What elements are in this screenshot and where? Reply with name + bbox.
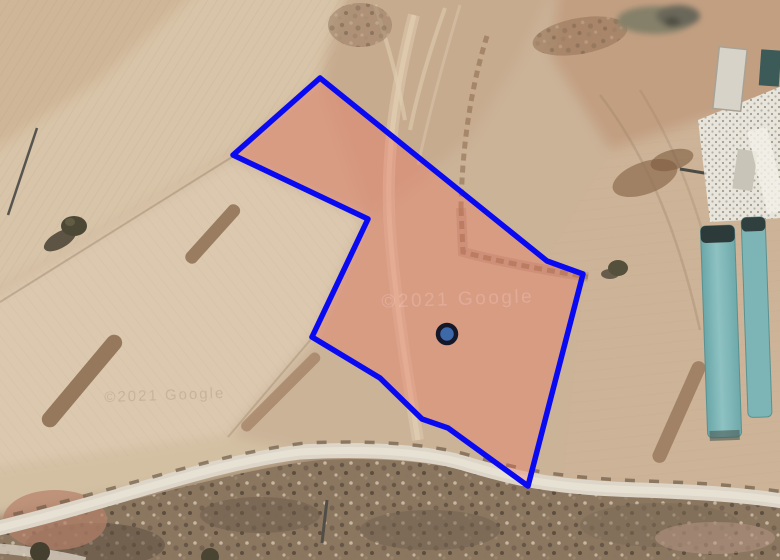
satellite-map[interactable]: ©2021 Google ©2021 Google — [0, 0, 780, 560]
bush-icon — [608, 260, 628, 276]
greenhouse-icon — [700, 225, 741, 438]
dark-structure — [759, 49, 780, 86]
tree-icon — [61, 216, 87, 236]
map-viewport[interactable]: ©2021 Google ©2021 Google — [0, 0, 780, 560]
shed-building — [713, 47, 747, 112]
parcel-marker[interactable] — [438, 325, 456, 343]
